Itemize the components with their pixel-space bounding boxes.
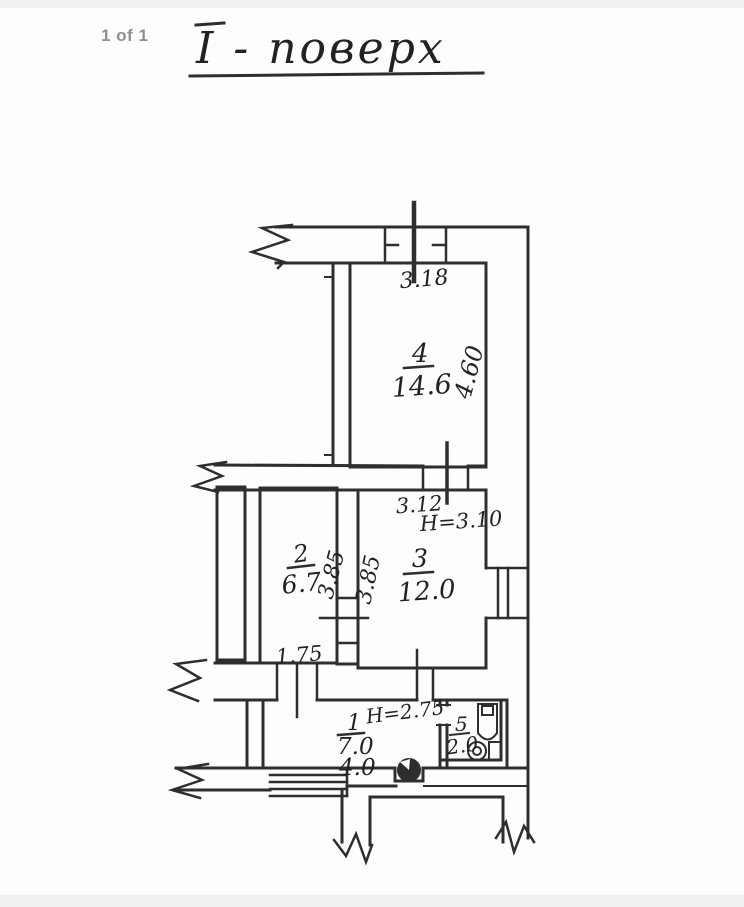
porch bbox=[342, 790, 503, 845]
room3-ceiling-height: Н=3.10 bbox=[418, 506, 503, 536]
room5-area: 2.0 bbox=[444, 731, 480, 759]
viewer-bottom-edge bbox=[0, 895, 744, 907]
room3-area: 12.0 bbox=[397, 575, 457, 609]
dim-room4-depth: 4.60 bbox=[448, 343, 489, 403]
roman-numeral-overline bbox=[196, 23, 224, 25]
room4-number: 4 bbox=[411, 339, 429, 369]
room4-number-underline bbox=[404, 366, 433, 368]
entrance-steps bbox=[270, 768, 347, 796]
break-top-left bbox=[252, 225, 292, 268]
break-porch-left bbox=[334, 834, 372, 862]
dim-room4-width: 3.18 bbox=[399, 265, 450, 294]
entrance bbox=[270, 768, 503, 845]
plan-title-text: І - поверх bbox=[195, 23, 446, 74]
room2-number: 2 bbox=[291, 539, 311, 569]
document-viewer: 1 of 1 І - поверх bbox=[0, 0, 744, 907]
dim-hall-opening: 1.75 bbox=[275, 641, 324, 669]
floor-plan-drawing: І - поверх bbox=[0, 0, 744, 907]
labels: 3.18 4 14.6 4.60 2 6.7 3.85 3.12 Н=3.10 … bbox=[275, 265, 503, 781]
break-mid-lower-left bbox=[170, 660, 206, 701]
stove-icon bbox=[398, 759, 420, 781]
room3-number: 3 bbox=[412, 544, 428, 573]
washbasin-icon bbox=[478, 704, 497, 740]
room1-area-secondary: 4.0 bbox=[338, 755, 376, 781]
room3-number-underline bbox=[404, 572, 433, 574]
window-right bbox=[486, 568, 528, 618]
plan-title: І - поверх bbox=[190, 23, 483, 76]
dim-room2-depth: 3.85 bbox=[314, 548, 351, 602]
room4-area: 14.6 bbox=[391, 369, 453, 404]
